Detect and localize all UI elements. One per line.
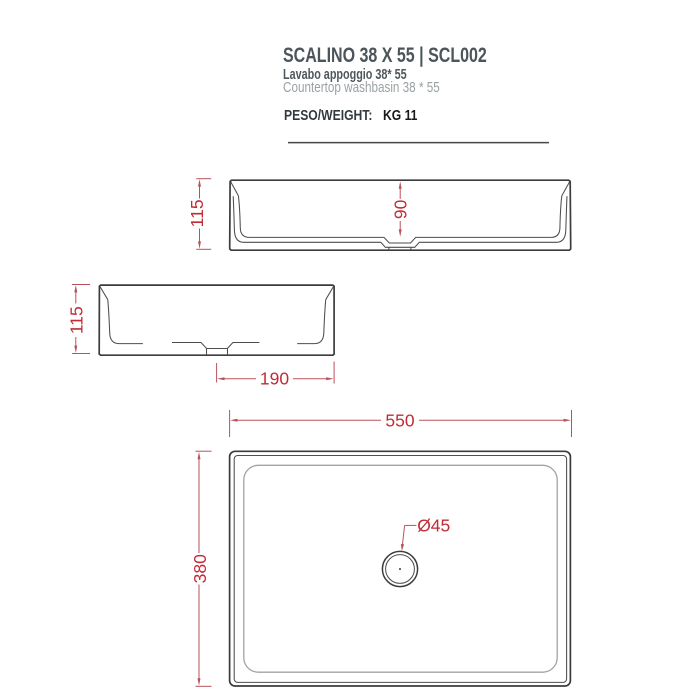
- svg-text:90: 90: [391, 199, 411, 219]
- svg-text:Ø45: Ø45: [417, 516, 450, 536]
- svg-text:550: 550: [385, 410, 414, 430]
- svg-text:115: 115: [187, 199, 207, 227]
- svg-text:190: 190: [260, 369, 289, 389]
- svg-text:115: 115: [67, 306, 87, 334]
- svg-text:380: 380: [190, 554, 210, 583]
